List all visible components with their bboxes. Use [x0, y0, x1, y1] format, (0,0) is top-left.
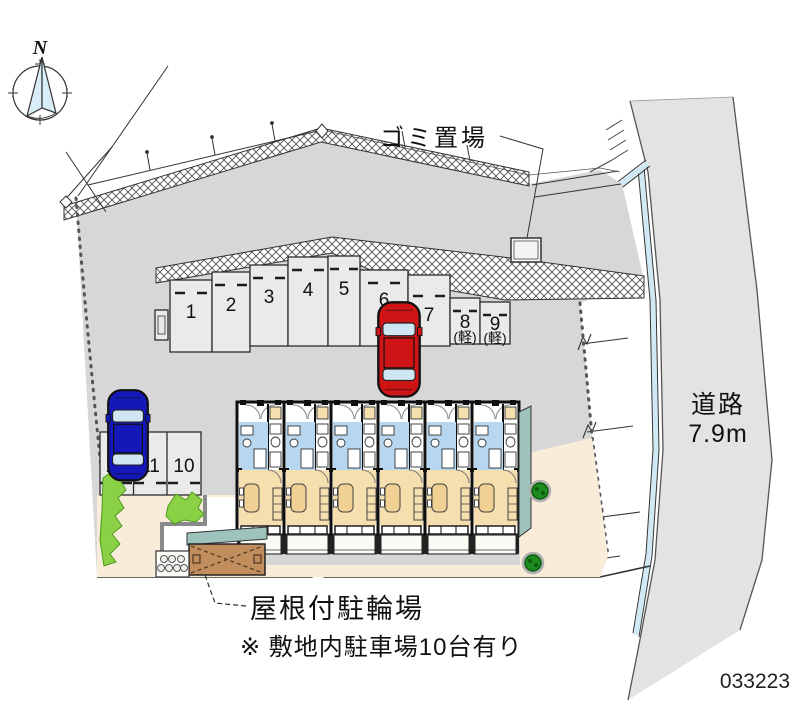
site-plan-map: 道路 7.9m — [0, 0, 800, 727]
road-name-label: 道路 — [691, 391, 745, 419]
apartment-unit-6 — [472, 400, 519, 554]
space-number: 3 — [264, 287, 275, 308]
utility-box — [155, 310, 168, 340]
tree — [530, 481, 550, 501]
apartment-unit-2 — [284, 400, 331, 554]
red-car — [376, 302, 422, 396]
space-number: 7 — [424, 305, 435, 326]
parking-space-1: 1 — [170, 280, 212, 352]
gravel-box — [156, 551, 189, 577]
parking-space-5: 5 — [328, 256, 360, 346]
space-number: 4 — [303, 280, 314, 301]
apartment-unit-3 — [331, 400, 378, 554]
space-type-kei: (軽) — [453, 329, 476, 345]
apartment-unit-5 — [425, 400, 472, 554]
site-plan-page: 道路 7.9m — [0, 0, 800, 727]
space-number: 2 — [226, 295, 237, 316]
road-width-label: 7.9m — [688, 420, 748, 448]
bicycle-parking-label: 屋根付駐輪場 — [250, 594, 424, 624]
space-number: 5 — [339, 279, 350, 300]
parking-space-2: 2 — [212, 272, 250, 352]
parking-space-4: 4 — [288, 257, 328, 346]
building-side-edge — [519, 406, 531, 537]
parking-space-9: 9 (軽) — [480, 302, 510, 346]
tree — [523, 553, 543, 573]
garbage-area-label: ゴミ置場 — [380, 125, 488, 152]
blue-car — [106, 390, 150, 480]
plan-number: 033223 — [720, 670, 790, 693]
site-note: ※ 敷地内駐車場10台有り — [240, 634, 522, 661]
space-type-kei: (軽) — [483, 330, 506, 346]
apartment-unit-4 — [378, 400, 425, 554]
space-number: 10 — [173, 456, 194, 477]
space-number: 1 — [186, 302, 197, 323]
apartment-building — [237, 400, 531, 554]
parking-space-3: 3 — [250, 265, 288, 346]
compass-north-label: N — [32, 37, 49, 59]
parking-space-8: 8 (軽) — [450, 298, 480, 345]
